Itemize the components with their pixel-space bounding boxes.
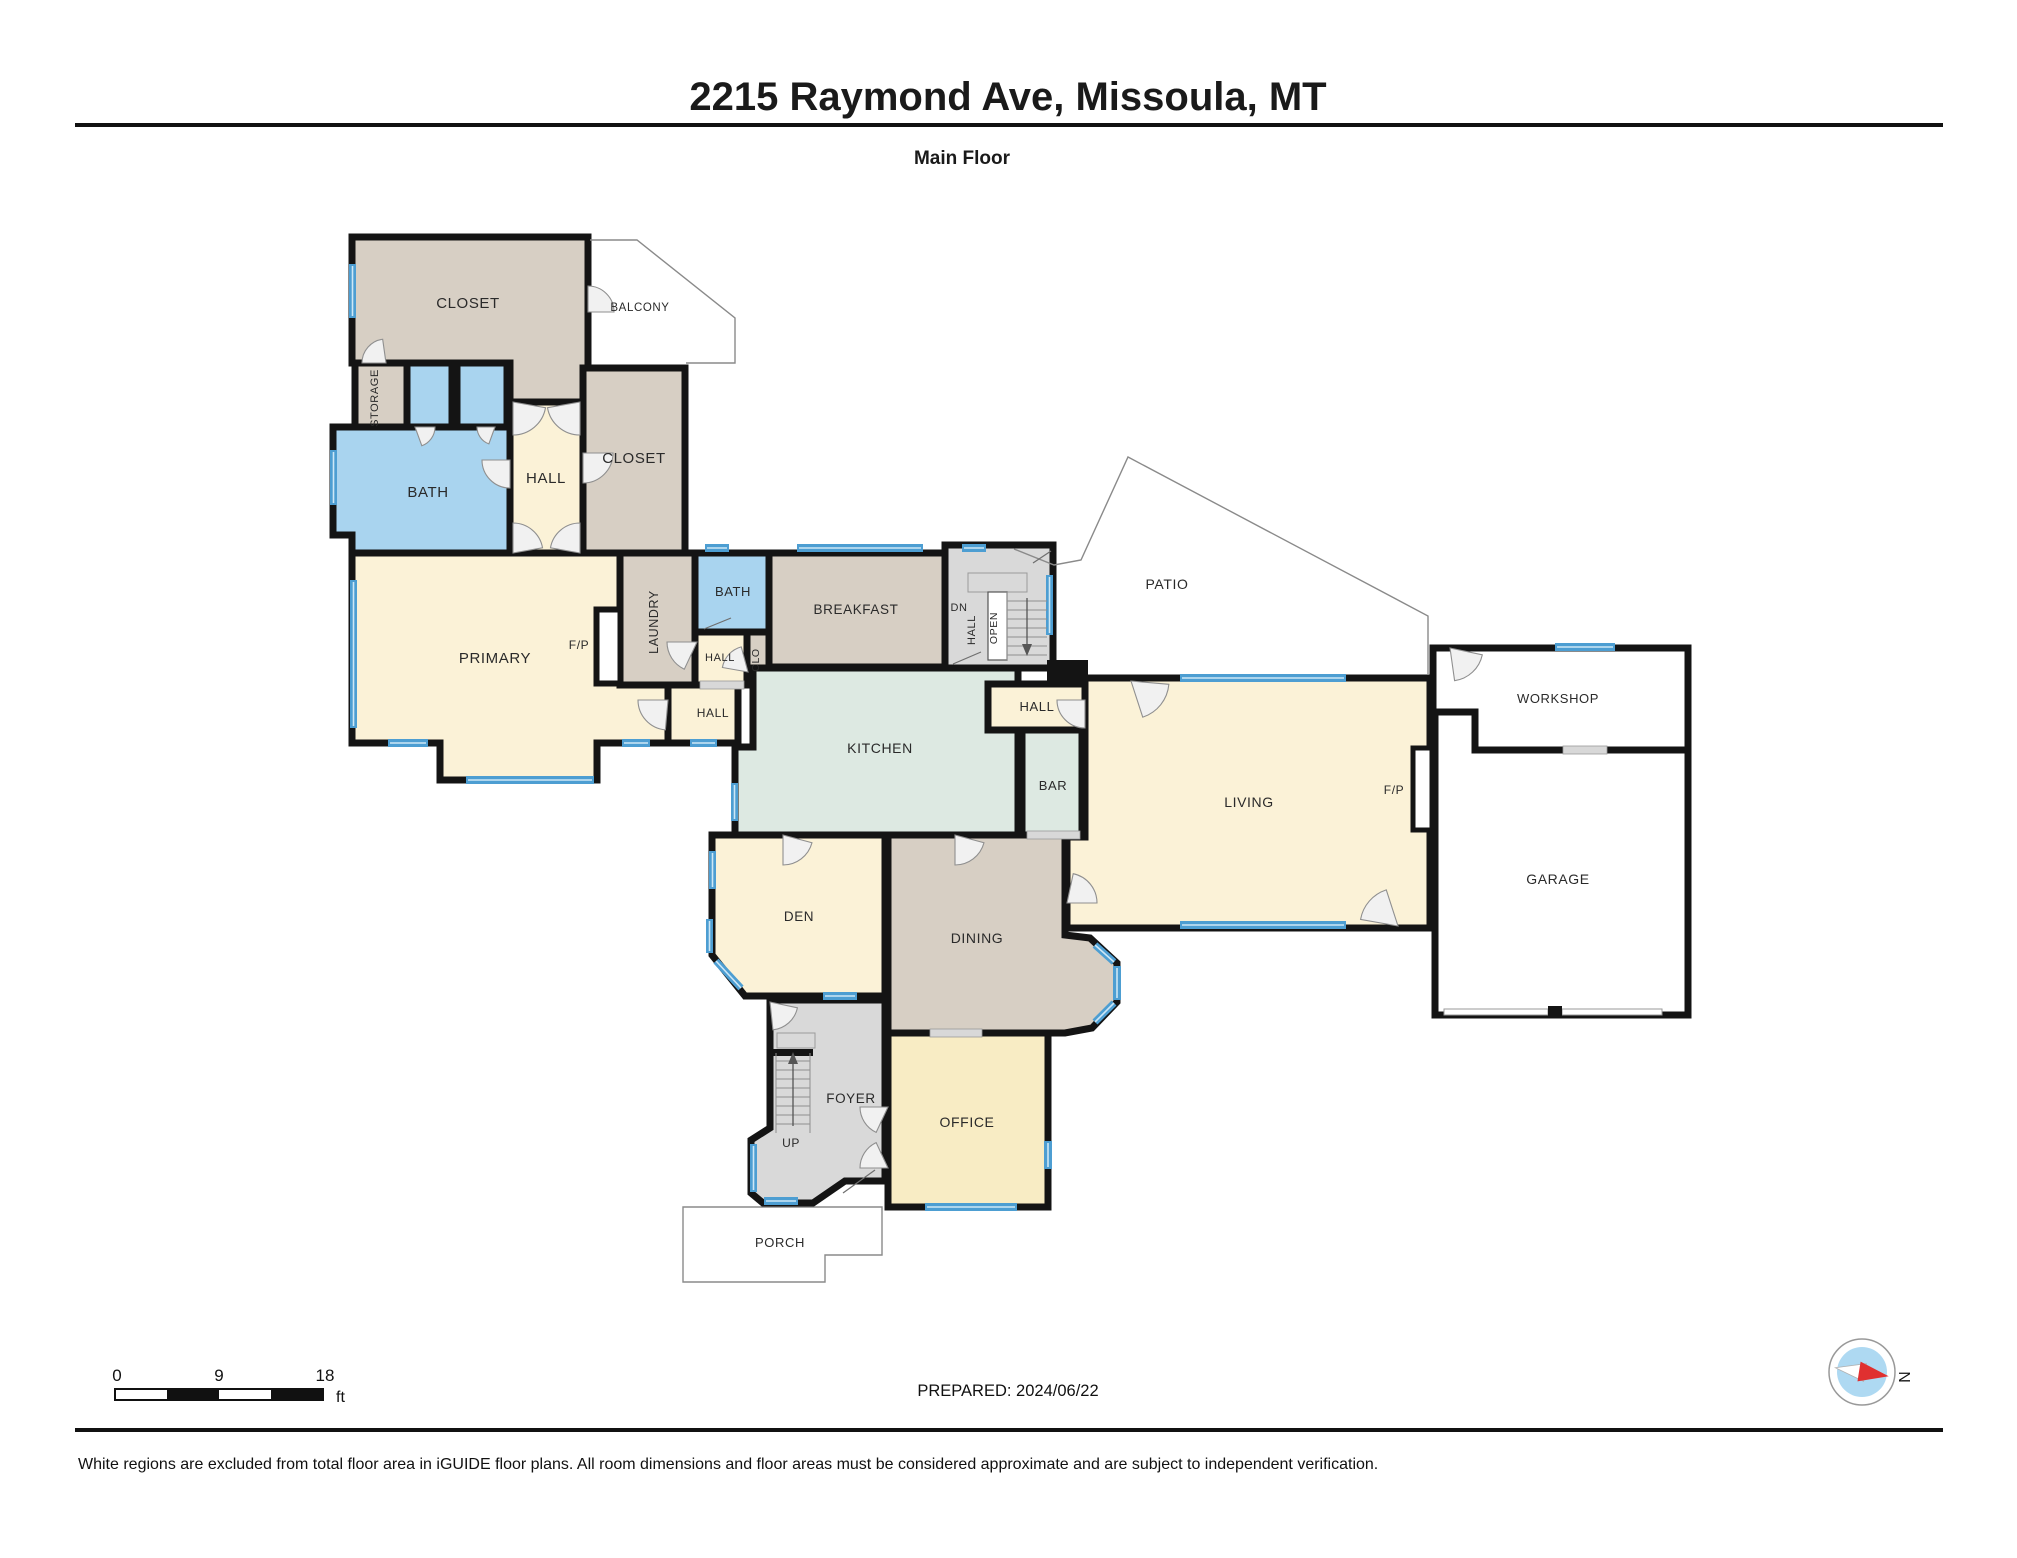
room-label-bath-main: BATH — [715, 584, 751, 599]
garage-door-post — [1548, 1006, 1562, 1017]
room-label-hall-living: HALL — [1020, 699, 1055, 714]
garage-door — [1444, 1009, 1548, 1015]
room-label-hall-stairs: HALL — [966, 615, 978, 645]
room-label-hall-upper: HALL — [526, 470, 566, 487]
room-label-patio: PATIO — [1146, 576, 1189, 592]
room-label-primary: PRIMARY — [459, 650, 531, 667]
scale-tick-0: 0 — [112, 1366, 121, 1385]
scale-bar-segment — [167, 1389, 219, 1400]
room-label-hall-bath: HALL — [705, 652, 735, 664]
room-label-living: LIVING — [1224, 794, 1274, 810]
room-label-breakfast: BREAKFAST — [814, 602, 899, 617]
floor-plan: CLOSETBALCONYSTORAGEBATHHALLCLOSETPRIMAR… — [330, 237, 1688, 1282]
room-label-porch: PORCH — [755, 1235, 805, 1250]
garage-door — [1562, 1009, 1662, 1015]
room-label-garage: GARAGE — [1526, 871, 1590, 887]
room-bath-stall-2 — [457, 363, 507, 427]
room-label-closet-upper: CLOSET — [436, 295, 500, 312]
room-bath-stall-1 — [407, 363, 452, 427]
room-label-workshop: WORKSHOP — [1517, 691, 1599, 706]
room-storage — [355, 363, 407, 427]
room-patio-outline — [1014, 457, 1428, 675]
room-label-clo: CLO — [750, 648, 762, 671]
room-label-closet-hall: CLOSET — [602, 450, 666, 467]
compass-icon: N — [1829, 1339, 1912, 1405]
scale-bar: 0 9 18 ft — [112, 1366, 345, 1406]
prepared-date: PREPARED: 2024/06/22 — [917, 1382, 1098, 1400]
door-jamb — [1563, 746, 1607, 754]
room-label-fireplace-living: F/P — [1384, 783, 1404, 797]
room-label-balcony: BALCONY — [610, 302, 669, 314]
compass-north-label: N — [1895, 1371, 1912, 1383]
door-jamb — [700, 681, 744, 689]
room-label-foyer: FOYER — [826, 1091, 876, 1106]
room-label-office: OFFICE — [940, 1114, 995, 1130]
room-label-storage: STORAGE — [369, 369, 381, 427]
room-label-stairs-open: OPEN — [988, 612, 1000, 644]
door-jamb — [930, 1029, 982, 1037]
fireplace-niche — [597, 610, 620, 683]
disclaimer-text: White regions are excluded from total fl… — [78, 1456, 1378, 1473]
room-label-laundry: LAUNDRY — [647, 590, 661, 654]
scale-unit-label: ft — [336, 1389, 345, 1406]
room-label-bar: BAR — [1039, 778, 1068, 793]
room-label-stairs-up: UP — [782, 1136, 800, 1150]
room-label-bath-upper: BATH — [407, 484, 448, 501]
scale-tick-18: 18 — [316, 1366, 335, 1385]
room-label-fireplace-primary: F/P — [569, 638, 589, 652]
room-label-stairs-down: DN — [950, 602, 967, 614]
header-rule — [75, 123, 1943, 127]
scale-bar-segment — [271, 1389, 323, 1400]
room-label-den: DEN — [784, 909, 814, 924]
door-jamb — [1027, 831, 1080, 839]
room-garage — [1435, 712, 1688, 1015]
wall-segment — [1047, 660, 1088, 685]
page-title: 2215 Raymond Ave, Missoula, MT — [689, 75, 1326, 119]
footer-rule — [75, 1428, 1943, 1432]
room-label-kitchen: KITCHEN — [847, 740, 913, 756]
floor-label: Main Floor — [914, 148, 1011, 169]
floor-plan-canvas: 2215 Raymond Ave, Missoula, MT Main Floo… — [0, 0, 2017, 1558]
room-label-hall-center: HALL — [697, 706, 729, 720]
room-label-dining: DINING — [951, 930, 1004, 946]
fireplace-niche — [1413, 748, 1432, 830]
floor-plan-page: 2215 Raymond Ave, Missoula, MT Main Floo… — [0, 0, 2017, 1558]
scale-tick-9: 9 — [214, 1366, 223, 1385]
